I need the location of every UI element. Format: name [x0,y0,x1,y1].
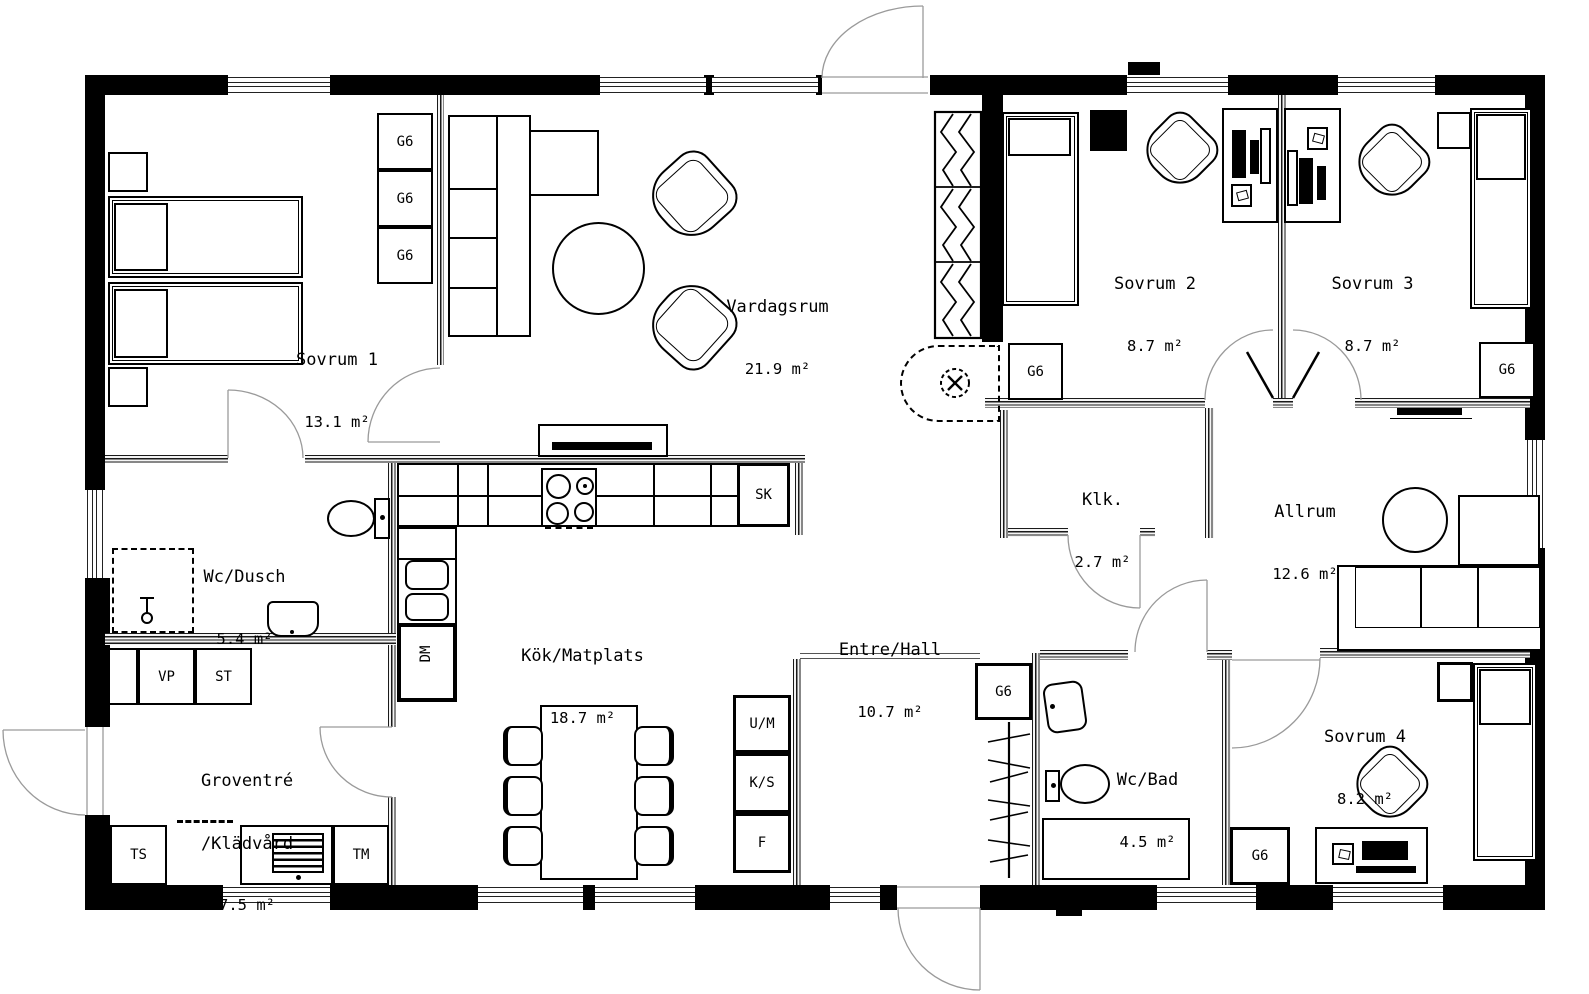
wardrobe-label: G6 [397,248,414,264]
room-label-wcdusch: Wc/Dusch 5.4 m² [172,526,317,649]
wardrobe-g6: G6 [1479,342,1535,398]
keyboard [1356,866,1416,873]
room-area: 8.2 m² [1295,790,1435,810]
computer-tower [1317,166,1326,200]
door-arc-front [898,908,980,990]
room-name: Vardagsrum [700,297,855,319]
pillow [1479,669,1531,725]
nightstand [108,152,148,192]
tv-bench [538,424,668,457]
dining-chair [634,826,674,866]
drying-cabinet-ts: TS [110,825,167,885]
room-area: 2.7 m² [1040,553,1165,573]
f-label: F [758,835,766,851]
room-area: 13.1 m² [262,413,412,433]
room-label-klk: Klk. 2.7 m² [1040,449,1165,572]
vp-label: VP [158,669,175,685]
wardrobe-g6: G6 [377,227,433,284]
room-label-sovrum4: Sovrum 4 8.2 m² [1295,686,1435,809]
desk-chair [1287,150,1298,206]
burner [574,502,594,522]
tv-allrum [1397,408,1462,415]
room-area: 18.7 m² [505,709,660,729]
paper [1231,184,1252,207]
room-name: Groventré [172,771,322,793]
wardrobe-g6: G6 [377,170,433,227]
cleaning-cabinet-st: ST [195,648,252,705]
toilet-button [1051,783,1056,788]
sofa-divider [1420,567,1422,628]
room-label-sovrum3: Sovrum 3 8.7 m² [1300,233,1445,356]
pillow [114,289,168,358]
pillow [1476,114,1526,180]
paper-inner [1236,190,1249,202]
dining-chair [503,776,543,816]
room-name: Wc/Dusch [172,567,317,589]
wardrobe-label: G6 [1252,848,1269,864]
room-area: 12.6 m² [1240,565,1370,585]
room-name: Entre/Hall [815,640,965,662]
fridge-ks: K/S [733,753,791,813]
room-area: 4.5 m² [1075,833,1220,853]
basin-drain [1050,704,1055,709]
sofa-cushion-line [450,237,496,239]
counter-divider [653,465,655,525]
door-arc-wcbad [1135,580,1207,652]
wardrobe-g6: G6 [1230,827,1290,885]
room-name: Sovrum 1 [262,350,412,372]
room-name: Klk. [1040,490,1165,512]
toilet-button [380,515,385,520]
sofa-divider [1477,567,1479,628]
tall-cabinet-sk: SK [737,463,790,527]
paper [1307,127,1328,150]
monitor [1299,158,1313,204]
freezer-f: F [733,813,791,873]
room-name: Sovrum 2 [1085,274,1225,296]
room-label-allrum: Allrum 12.6 m² [1240,461,1370,584]
sofa-cushion-line [450,188,496,190]
burner-dot [583,484,587,488]
ks-label: K/S [749,775,774,791]
ts-label: TS [130,847,147,863]
burner [546,502,569,525]
wardrobe-label: G6 [1027,364,1044,380]
sofa-divider [496,117,498,335]
toilet-bowl [327,500,375,537]
wardrobe-zigzag [935,112,981,338]
nightstand [1437,112,1471,149]
dining-chair [634,776,674,816]
washbasin [1042,679,1089,734]
tv [552,442,652,450]
um-label: U/M [749,716,774,732]
room-name: Sovrum 4 [1295,727,1435,749]
room-label-wcbad: Wc/Bad 4.5 m² [1075,729,1220,852]
room-area: 8.7 m² [1300,337,1445,357]
burner [546,474,571,499]
wardrobe-label: G6 [995,684,1012,700]
dishwasher-label: DM [418,639,436,669]
sink-basin [405,593,449,621]
wardrobe-g6: G6 [975,663,1032,720]
room-area: 21.9 m² [700,360,855,380]
computer-tower [1250,140,1259,174]
room-label-entre: Entre/Hall 10.7 m² [815,599,965,722]
room-name: Sovrum 3 [1300,274,1445,296]
heat-pump-vp: VP [138,648,195,705]
monitor [1232,130,1246,178]
room-label-sovrum1: Sovrum 1 13.1 m² [262,309,412,432]
sofa-cushions [1355,567,1540,628]
counter-divider [710,465,712,525]
room-area: 5.4 m² [172,630,317,650]
nightstand [1437,662,1473,702]
wardrobe-label: G6 [1499,362,1516,378]
door-leaves-diagonal [1247,352,1319,398]
door-arc-groventre-ext [3,730,85,815]
paper [1332,843,1354,865]
sofa-corner-section [1458,495,1540,566]
desk-chair [1260,128,1271,184]
fireplace-dashed [900,345,1000,422]
sink-basin [405,560,449,590]
sofa-vardagsrum [448,115,531,337]
counter-divider [487,465,489,525]
st-label: ST [215,669,232,685]
tv-shelf-line [1390,418,1472,419]
room-area: 8.7 m² [1085,337,1225,357]
pillow [1008,118,1071,156]
coat-rail [988,722,1030,878]
room-label-groventre: Groventré /Klädvård 7.5 m² [172,730,322,916]
room-area: 7.5 m² [172,896,322,916]
room-label-vardagsrum: Vardagsrum 21.9 m² [700,256,855,379]
pillow [114,203,168,271]
wardrobe-g6: G6 [1008,343,1063,400]
tm-label: TM [353,847,370,863]
nightstand [108,367,148,407]
monitor [1362,841,1408,860]
paper-inner [1338,849,1351,860]
oven-micro-um: U/M [733,695,791,753]
paper-inner [1312,133,1325,145]
dining-chair [503,826,543,866]
wardrobe-label: G6 [397,191,414,207]
oven-dashes [545,527,593,529]
room-label-sovrum2: Sovrum 2 8.7 m² [1085,233,1225,356]
floor-plan: G6 G6 G6 G6 G6 [0,0,1589,994]
nightstand [1090,110,1127,151]
coffee-table [552,222,645,315]
room-name-line2: /Klädvård [172,834,322,856]
dining-table [540,705,638,880]
washing-machine-tm: TM [333,825,389,885]
sofa-chaise [529,130,599,196]
room-label-kok: Kök/Matplats 18.7 m² [505,605,660,728]
wardrobe-label: G6 [397,134,414,150]
counter-divider [457,465,459,525]
sofa-cushion-line [450,287,496,289]
room-name: Allrum [1240,502,1370,524]
room-name: Wc/Bad [1075,770,1220,792]
dining-chair [503,726,543,766]
wardrobe-g6: G6 [377,113,433,170]
door-arc-groventre-kitchen [320,727,392,797]
round-table-allrum [1382,487,1448,553]
sk-label: SK [755,487,772,503]
door-arc-patio [822,6,923,78]
dining-chair [634,726,674,766]
cabinet-diagonal-cell [108,648,138,705]
room-area: 10.7 m² [815,703,965,723]
room-name: Kök/Matplats [505,646,660,668]
